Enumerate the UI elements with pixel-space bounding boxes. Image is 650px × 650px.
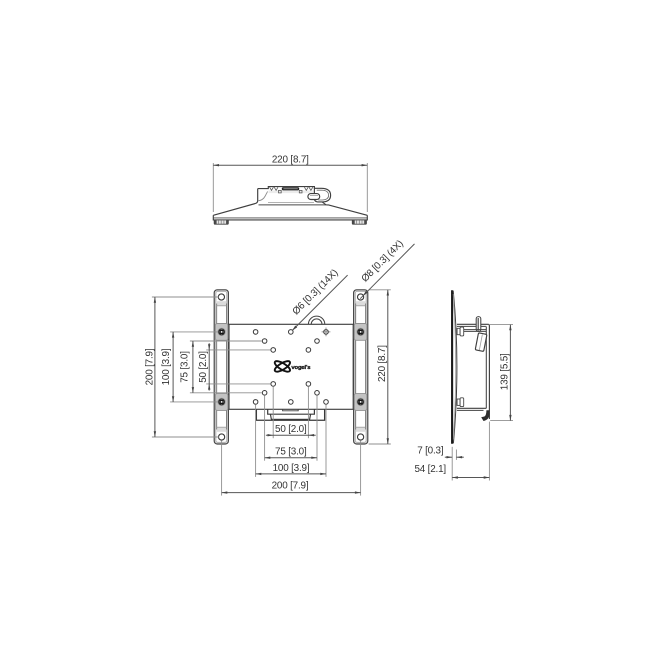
svg-text:75 [3.0]: 75 [3.0] bbox=[275, 446, 307, 457]
svg-text:100 [3.9]: 100 [3.9] bbox=[161, 348, 172, 385]
svg-text:220 [8.7]: 220 [8.7] bbox=[377, 345, 388, 382]
svg-text:75 [3.0]: 75 [3.0] bbox=[180, 351, 191, 383]
svg-text:220 [8.7]: 220 [8.7] bbox=[272, 155, 309, 166]
svg-text:7 [0.3]: 7 [0.3] bbox=[417, 446, 444, 457]
svg-text:200 [7.9]: 200 [7.9] bbox=[272, 481, 309, 492]
svg-text:139 [5.5]: 139 [5.5] bbox=[500, 353, 511, 390]
svg-text:50 [2.0]: 50 [2.0] bbox=[198, 351, 209, 383]
svg-text:54 [2.1]: 54 [2.1] bbox=[414, 464, 446, 475]
svg-text:200 [7.9]: 200 [7.9] bbox=[144, 348, 155, 385]
svg-text:100 [3.9]: 100 [3.9] bbox=[273, 463, 310, 474]
svg-text:vogel's: vogel's bbox=[291, 365, 311, 371]
svg-text:50 [2.0]: 50 [2.0] bbox=[275, 424, 307, 435]
